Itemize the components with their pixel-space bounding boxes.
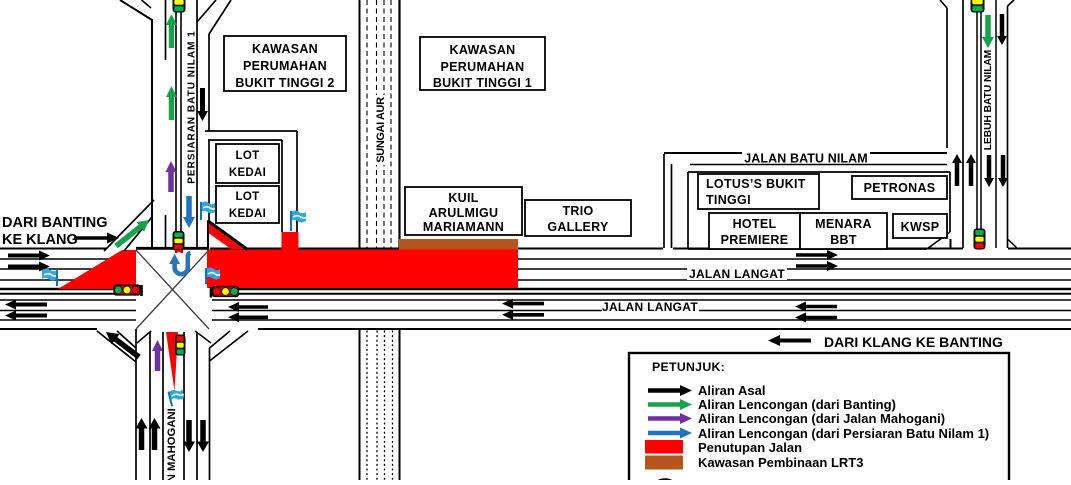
svg-text:JALAN MAHOGANI: JALAN MAHOGANI <box>166 408 178 480</box>
svg-text:TRIO: TRIO <box>562 204 593 218</box>
svg-text:MENARA: MENARA <box>815 217 872 231</box>
svg-text:ARULMIGU: ARULMIGU <box>429 206 499 220</box>
svg-text:GALLERY: GALLERY <box>547 220 609 234</box>
svg-text:Aliran Lencongan (dari Jalan M: Aliran Lencongan (dari Jalan Mahogani) <box>698 411 945 426</box>
svg-text:KAWASAN: KAWASAN <box>252 42 318 56</box>
svg-text:KAWASAN: KAWASAN <box>450 43 516 57</box>
svg-text:KUIL: KUIL <box>448 191 478 205</box>
svg-text:LOT: LOT <box>236 191 260 203</box>
svg-text:KEDAI: KEDAI <box>229 208 266 220</box>
svg-text:DARI BANTING: DARI BANTING <box>2 215 108 231</box>
svg-text:BBT: BBT <box>830 233 857 247</box>
svg-text:Aliran Lencongan (dari Persiar: Aliran Lencongan (dari Persiaran Batu Ni… <box>698 426 989 441</box>
svg-text:BUKIT TINGGI 2: BUKIT TINGGI 2 <box>235 76 334 90</box>
svg-text:LOTUS’S BUKIT: LOTUS’S BUKIT <box>706 177 806 191</box>
svg-text:Kawasan Pembinaan LRT3: Kawasan Pembinaan LRT3 <box>698 455 863 470</box>
svg-text:SUNGAI AUR: SUNGAI AUR <box>375 97 387 163</box>
svg-text:PREMIERE: PREMIERE <box>721 233 789 247</box>
svg-text:PERUMAHAN: PERUMAHAN <box>441 60 525 74</box>
svg-text:BUKIT TINGGI 1: BUKIT TINGGI 1 <box>433 76 532 90</box>
svg-text:LOT: LOT <box>236 150 260 162</box>
svg-text:PETUNJUK:: PETUNJUK: <box>652 360 725 374</box>
svg-text:Penutupan Jalan: Penutupan Jalan <box>698 440 802 455</box>
svg-text:KE KLANG: KE KLANG <box>2 232 78 248</box>
svg-text:KEDAI: KEDAI <box>229 167 266 179</box>
svg-text:MARIAMANN: MARIAMANN <box>423 220 504 234</box>
svg-text:JALAN LANGAT: JALAN LANGAT <box>602 300 698 314</box>
svg-text:PERUMAHAN: PERUMAHAN <box>243 59 327 73</box>
svg-text:KWSP: KWSP <box>901 220 940 234</box>
svg-text:DARI KLANG KE BANTING: DARI KLANG KE BANTING <box>824 334 1003 350</box>
svg-text:JALAN LANGAT: JALAN LANGAT <box>689 267 785 281</box>
svg-text:PERSIARAN BATU NILAM 1: PERSIARAN BATU NILAM 1 <box>187 30 198 183</box>
svg-text:Aliran Lencongan (dari Banting: Aliran Lencongan (dari Banting) <box>698 397 896 412</box>
svg-text:JALAN BATU NILAM: JALAN BATU NILAM <box>744 152 868 166</box>
svg-text:LEBUH BATU NILAM: LEBUH BATU NILAM <box>983 50 994 151</box>
svg-text:HOTEL: HOTEL <box>733 217 777 231</box>
svg-text:PETRONAS: PETRONAS <box>864 181 936 195</box>
svg-text:Aliran Asal: Aliran Asal <box>698 383 765 398</box>
svg-text:TINGGI: TINGGI <box>706 193 751 207</box>
